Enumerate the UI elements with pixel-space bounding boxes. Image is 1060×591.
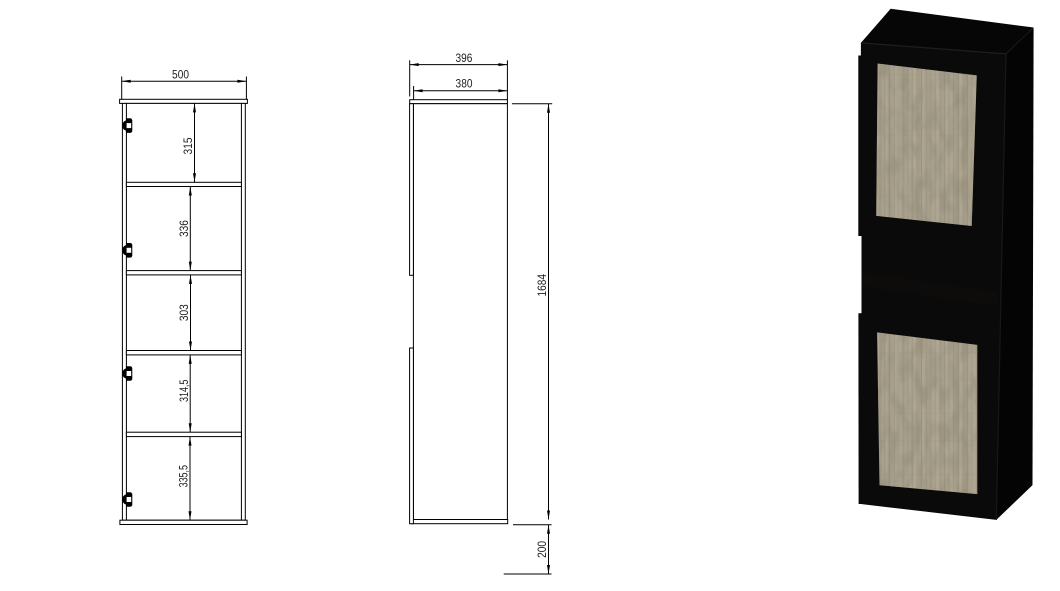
svg-text:396: 396 <box>455 53 472 66</box>
svg-text:335,5: 335,5 <box>179 465 191 488</box>
svg-text:380: 380 <box>456 78 473 91</box>
svg-text:500: 500 <box>172 69 189 82</box>
svg-text:315: 315 <box>183 138 196 155</box>
svg-text:314,5: 314,5 <box>179 379 191 402</box>
svg-text:200: 200 <box>536 541 549 558</box>
svg-text:336: 336 <box>178 220 191 237</box>
svg-text:303: 303 <box>179 304 192 321</box>
svg-text:1684: 1684 <box>536 274 549 297</box>
